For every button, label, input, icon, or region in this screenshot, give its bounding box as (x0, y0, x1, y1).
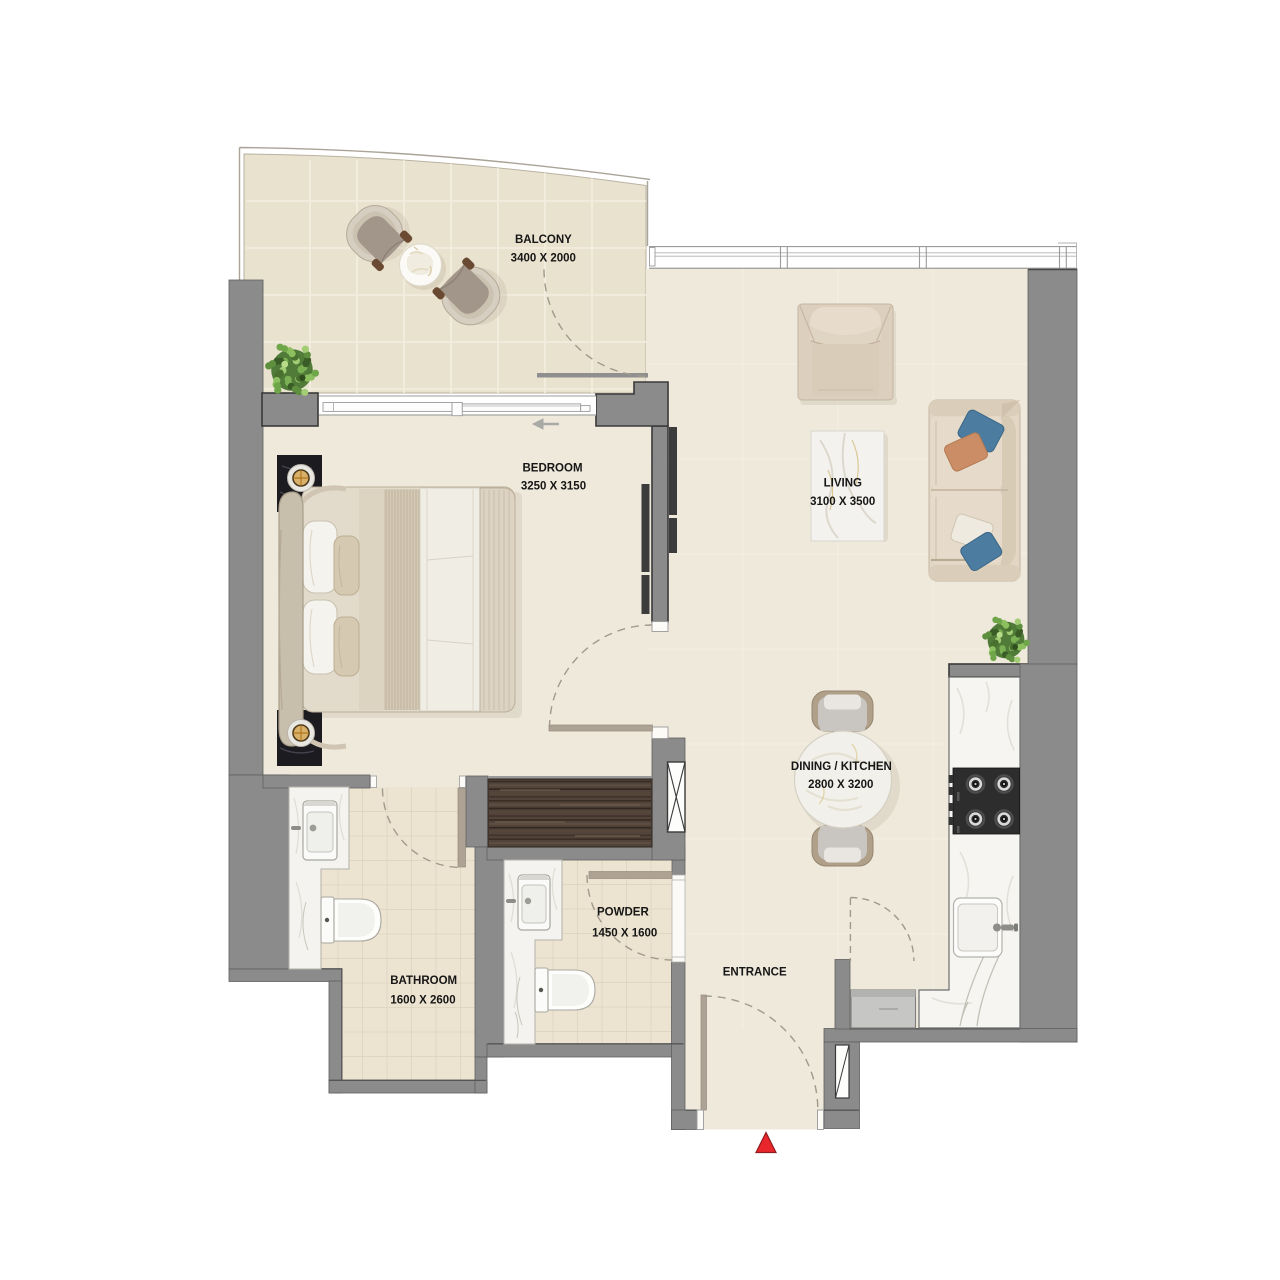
svg-text:3400 X 2000: 3400 X 2000 (511, 253, 576, 265)
svg-text:BATHROOM: BATHROOM (390, 975, 457, 987)
svg-text:DINING / KITCHEN: DINING / KITCHEN (791, 761, 892, 773)
svg-text:3100 X 3500: 3100 X 3500 (810, 496, 875, 508)
svg-text:POWDER: POWDER (597, 907, 649, 919)
svg-text:2800 X 3200: 2800 X 3200 (808, 779, 873, 791)
svg-text:1600 X 2600: 1600 X 2600 (390, 995, 455, 1007)
svg-text:BALCONY: BALCONY (515, 234, 572, 246)
svg-text:LIVING: LIVING (824, 478, 862, 490)
svg-text:1450 X 1600: 1450 X 1600 (592, 928, 657, 940)
svg-text:BEDROOM: BEDROOM (522, 463, 582, 475)
svg-text:3250 X 3150: 3250 X 3150 (521, 481, 586, 493)
svg-text:ENTRANCE: ENTRANCE (723, 967, 787, 979)
